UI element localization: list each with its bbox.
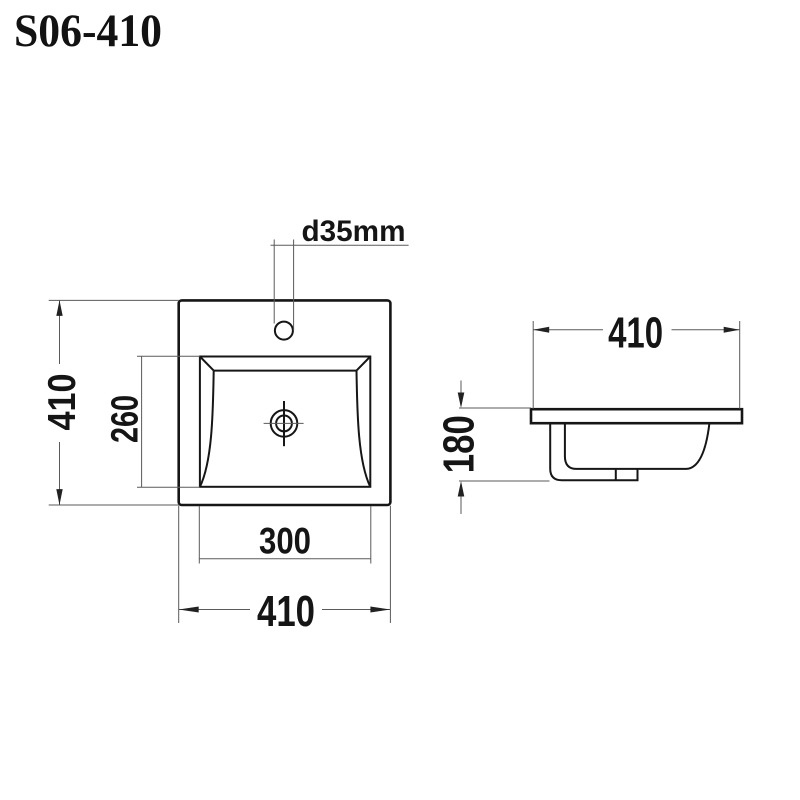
svg-text:260: 260: [105, 395, 147, 443]
svg-text:410: 410: [608, 309, 663, 358]
svg-text:410: 410: [257, 587, 315, 636]
svg-text:d35mm: d35mm: [302, 215, 406, 248]
svg-text:S06-410: S06-410: [14, 5, 162, 57]
svg-text:180: 180: [435, 415, 484, 473]
svg-text:300: 300: [259, 521, 311, 562]
svg-text:410: 410: [41, 374, 84, 431]
